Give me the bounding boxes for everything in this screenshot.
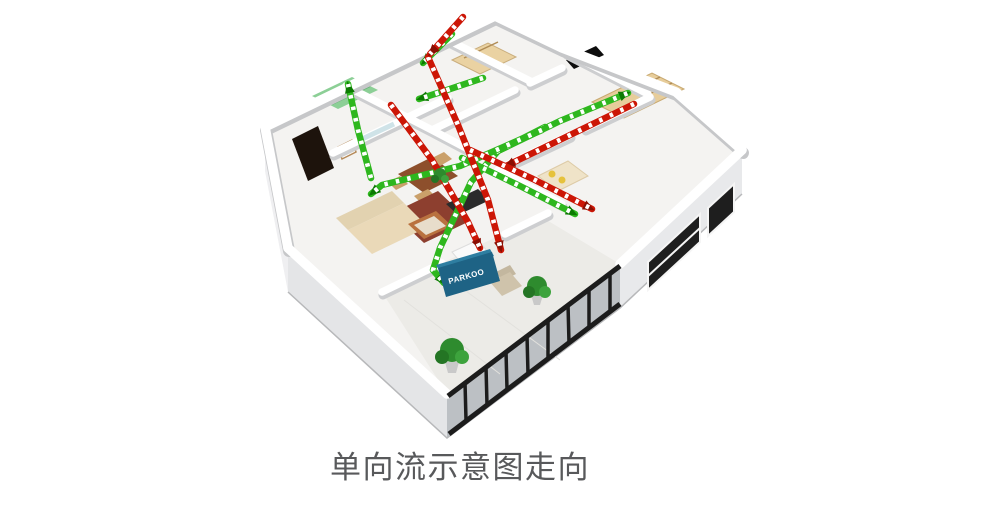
floorplan-scene: PARKOO 单向流示意图走向 xyxy=(0,0,1000,510)
diagram-caption: 单向流示意图走向 xyxy=(330,442,590,487)
pillow xyxy=(559,177,566,184)
pillow xyxy=(549,171,556,178)
floorplan-illustration: PARKOO xyxy=(0,0,1000,510)
